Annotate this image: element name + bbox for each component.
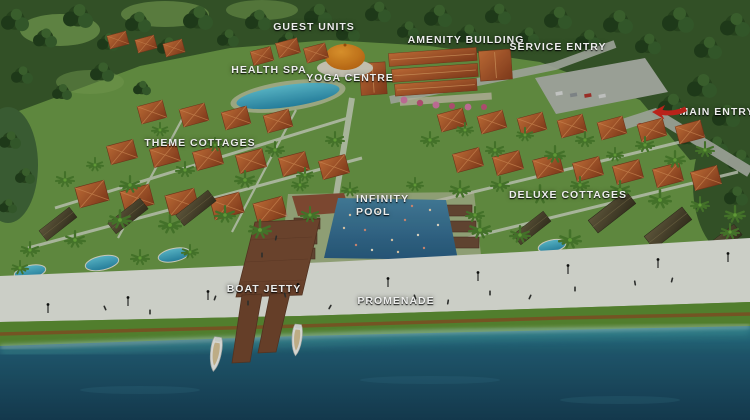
label-health-spa: HEALTH SPA [231, 64, 307, 76]
label-service-entry: SERVICE ENTRY [509, 41, 606, 53]
label-theme-cottages: THEME COTTAGES [144, 137, 255, 149]
label-yoga-centre: YOGA CENTRE [306, 72, 394, 84]
label-guest-units: GUEST UNITS [273, 21, 355, 33]
label-infinity-pool-line1: INFINITY [356, 193, 409, 206]
label-promenade: PROMENADE [357, 295, 434, 307]
label-boat-jetty: BOAT JETTY [227, 283, 302, 295]
main-entry-arrow-icon [650, 103, 688, 121]
label-main-entry: MAIN ENTRY [680, 106, 750, 118]
main-entry-arrow-shape [652, 105, 687, 120]
label-amenity-building: AMENITY BUILDING [408, 34, 525, 46]
label-infinity-pool-line2: POOL [356, 206, 409, 219]
resort-masterplan-render: GUEST UNITS AMENITY BUILDING SERVICE ENT… [0, 0, 750, 420]
label-infinity-pool: INFINITY POOL [356, 193, 409, 219]
label-deluxe-cottages: DELUXE COTTAGES [509, 189, 627, 201]
